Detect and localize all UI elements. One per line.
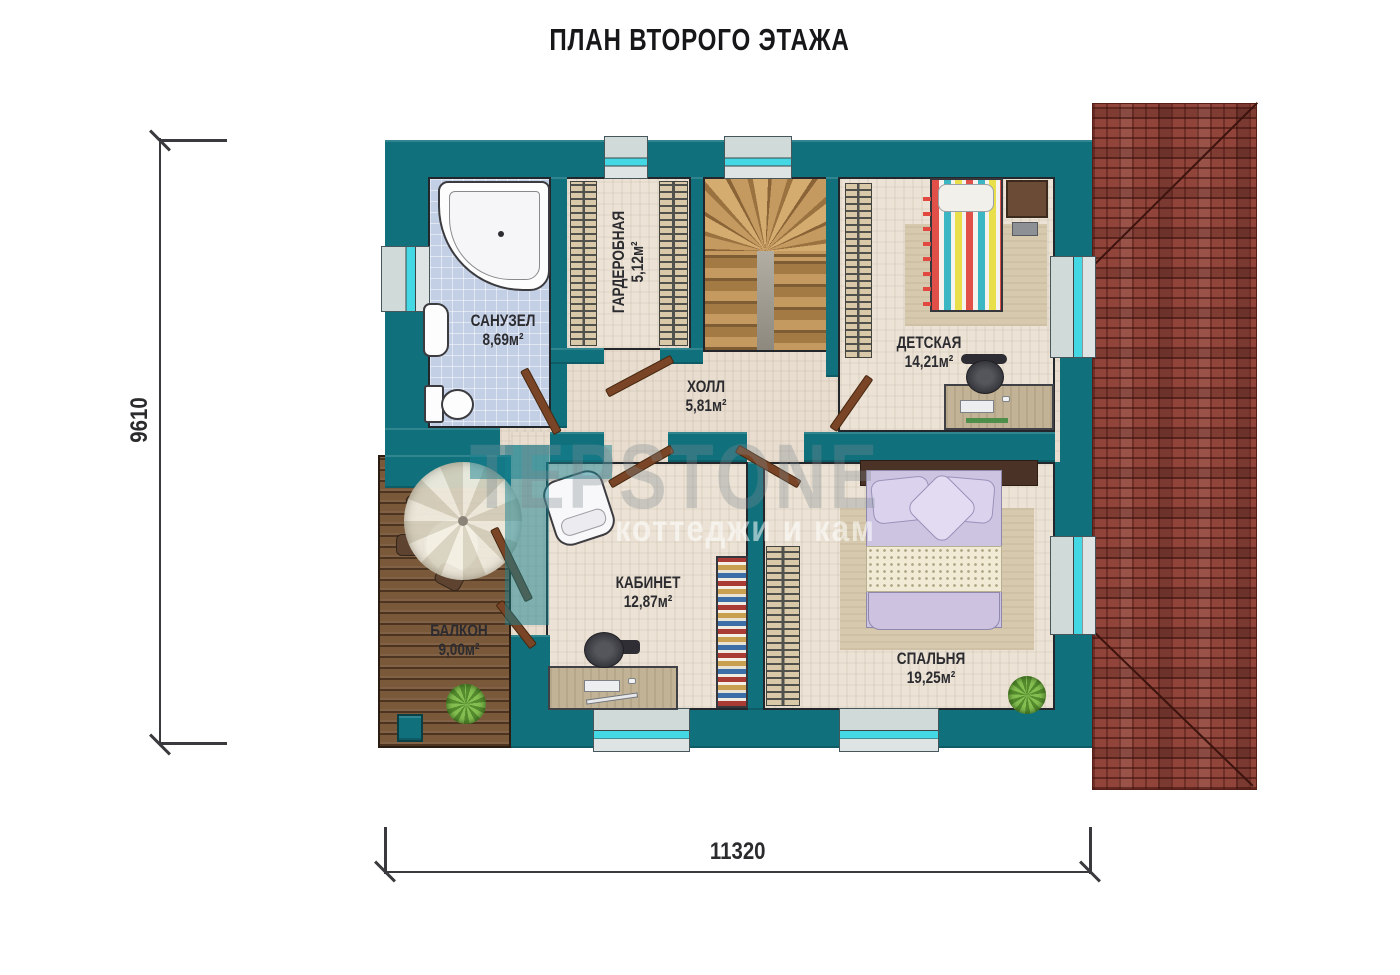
sink	[423, 303, 449, 357]
wall-bathroom-bottom	[385, 428, 500, 457]
wall-bathroom-wardrobe	[551, 177, 567, 428]
keyboard	[584, 680, 620, 692]
dimension-width-label: 11320	[705, 838, 770, 866]
umbrella-pole	[458, 516, 468, 526]
window-top-stairs	[724, 136, 792, 179]
window-bottom-bedroom	[839, 708, 939, 752]
dimension-extension-bottom	[159, 742, 227, 745]
wall-hall-office	[550, 432, 604, 462]
room-label-bedroom: СПАЛЬНЯ19,25м²	[888, 649, 974, 687]
dimension-extension-right	[1089, 827, 1092, 874]
children-bed-ties	[923, 186, 931, 306]
window-bottom-office	[593, 708, 690, 752]
window-right-bedroom	[1050, 536, 1096, 635]
wall-wardrobe-stairs	[691, 177, 703, 352]
staircase	[703, 177, 828, 352]
wall-stairs-children	[826, 177, 838, 377]
window-right-children	[1050, 256, 1096, 358]
ruler	[586, 692, 638, 704]
balcony-pillar	[397, 714, 423, 742]
roof-shingles	[1092, 103, 1257, 790]
office-chair	[584, 632, 624, 668]
window-left-bathroom	[381, 246, 430, 312]
wall-hall-center-stub	[668, 432, 747, 462]
mouse	[1002, 396, 1010, 402]
wardrobe-rack-right	[659, 181, 688, 346]
toilet-bowl	[441, 389, 474, 420]
room-label-balcony: БАЛКОН9,00м²	[423, 621, 495, 659]
children-nightstand	[1006, 180, 1048, 218]
dimension-line-vertical	[159, 138, 161, 746]
children-bed	[930, 178, 1003, 312]
bed-duvet	[868, 592, 1000, 630]
mouse	[628, 678, 636, 684]
dimension-extension-left	[384, 827, 387, 874]
office-bookshelf	[716, 556, 748, 708]
room-label-office: КАБИНЕТ12,87м²	[607, 573, 688, 611]
office-armchair-seat	[559, 507, 608, 538]
wall-balcony-right	[511, 635, 550, 748]
children-nightstand-item	[1012, 222, 1038, 236]
dimension-height-label: 9610	[126, 393, 154, 446]
page-title: ПЛАН ВТОРОГО ЭТАЖА	[420, 22, 980, 58]
children-bed-pillow	[938, 184, 994, 212]
ruler	[966, 418, 1008, 423]
stair-flight-right	[774, 251, 826, 350]
dimension-line-horizontal	[385, 871, 1092, 873]
children-desk	[944, 384, 1054, 430]
bathtub-basin	[449, 191, 540, 280]
stair-winders	[705, 179, 826, 251]
children-chair	[966, 360, 1004, 394]
room-label-hall: ХОЛЛ5,81м²	[680, 377, 731, 415]
room-label-bathroom: САНУЗЕЛ8,69м²	[463, 311, 544, 349]
wall-wardrobe-bottom-left	[551, 348, 604, 364]
stair-stringer	[757, 251, 774, 350]
plant-icon	[446, 684, 486, 724]
stair-flight-left	[705, 251, 757, 350]
children-rack	[845, 183, 872, 358]
room-label-wardrobe: ГАРДЕРОБНАЯ5,12м²	[609, 198, 647, 326]
plant-icon	[1008, 676, 1046, 714]
keyboard	[960, 400, 994, 413]
floor-plan-canvas: ПЛАН ВТОРОГО ЭТАЖА 9610 11320	[0, 0, 1400, 975]
wall-hall-bedroom	[804, 432, 1055, 462]
dimension-extension-top	[159, 139, 227, 142]
wardrobe-rack-left	[570, 181, 597, 346]
bathtub-drain	[498, 231, 504, 237]
bed-throw-blanket	[866, 546, 1002, 592]
office-desk	[548, 666, 678, 710]
wall-office-bedroom	[748, 462, 763, 710]
room-label-children: ДЕТСКАЯ14,21м²	[889, 333, 970, 371]
window-top-wardrobe	[604, 136, 648, 179]
bedroom-rack	[766, 546, 800, 706]
